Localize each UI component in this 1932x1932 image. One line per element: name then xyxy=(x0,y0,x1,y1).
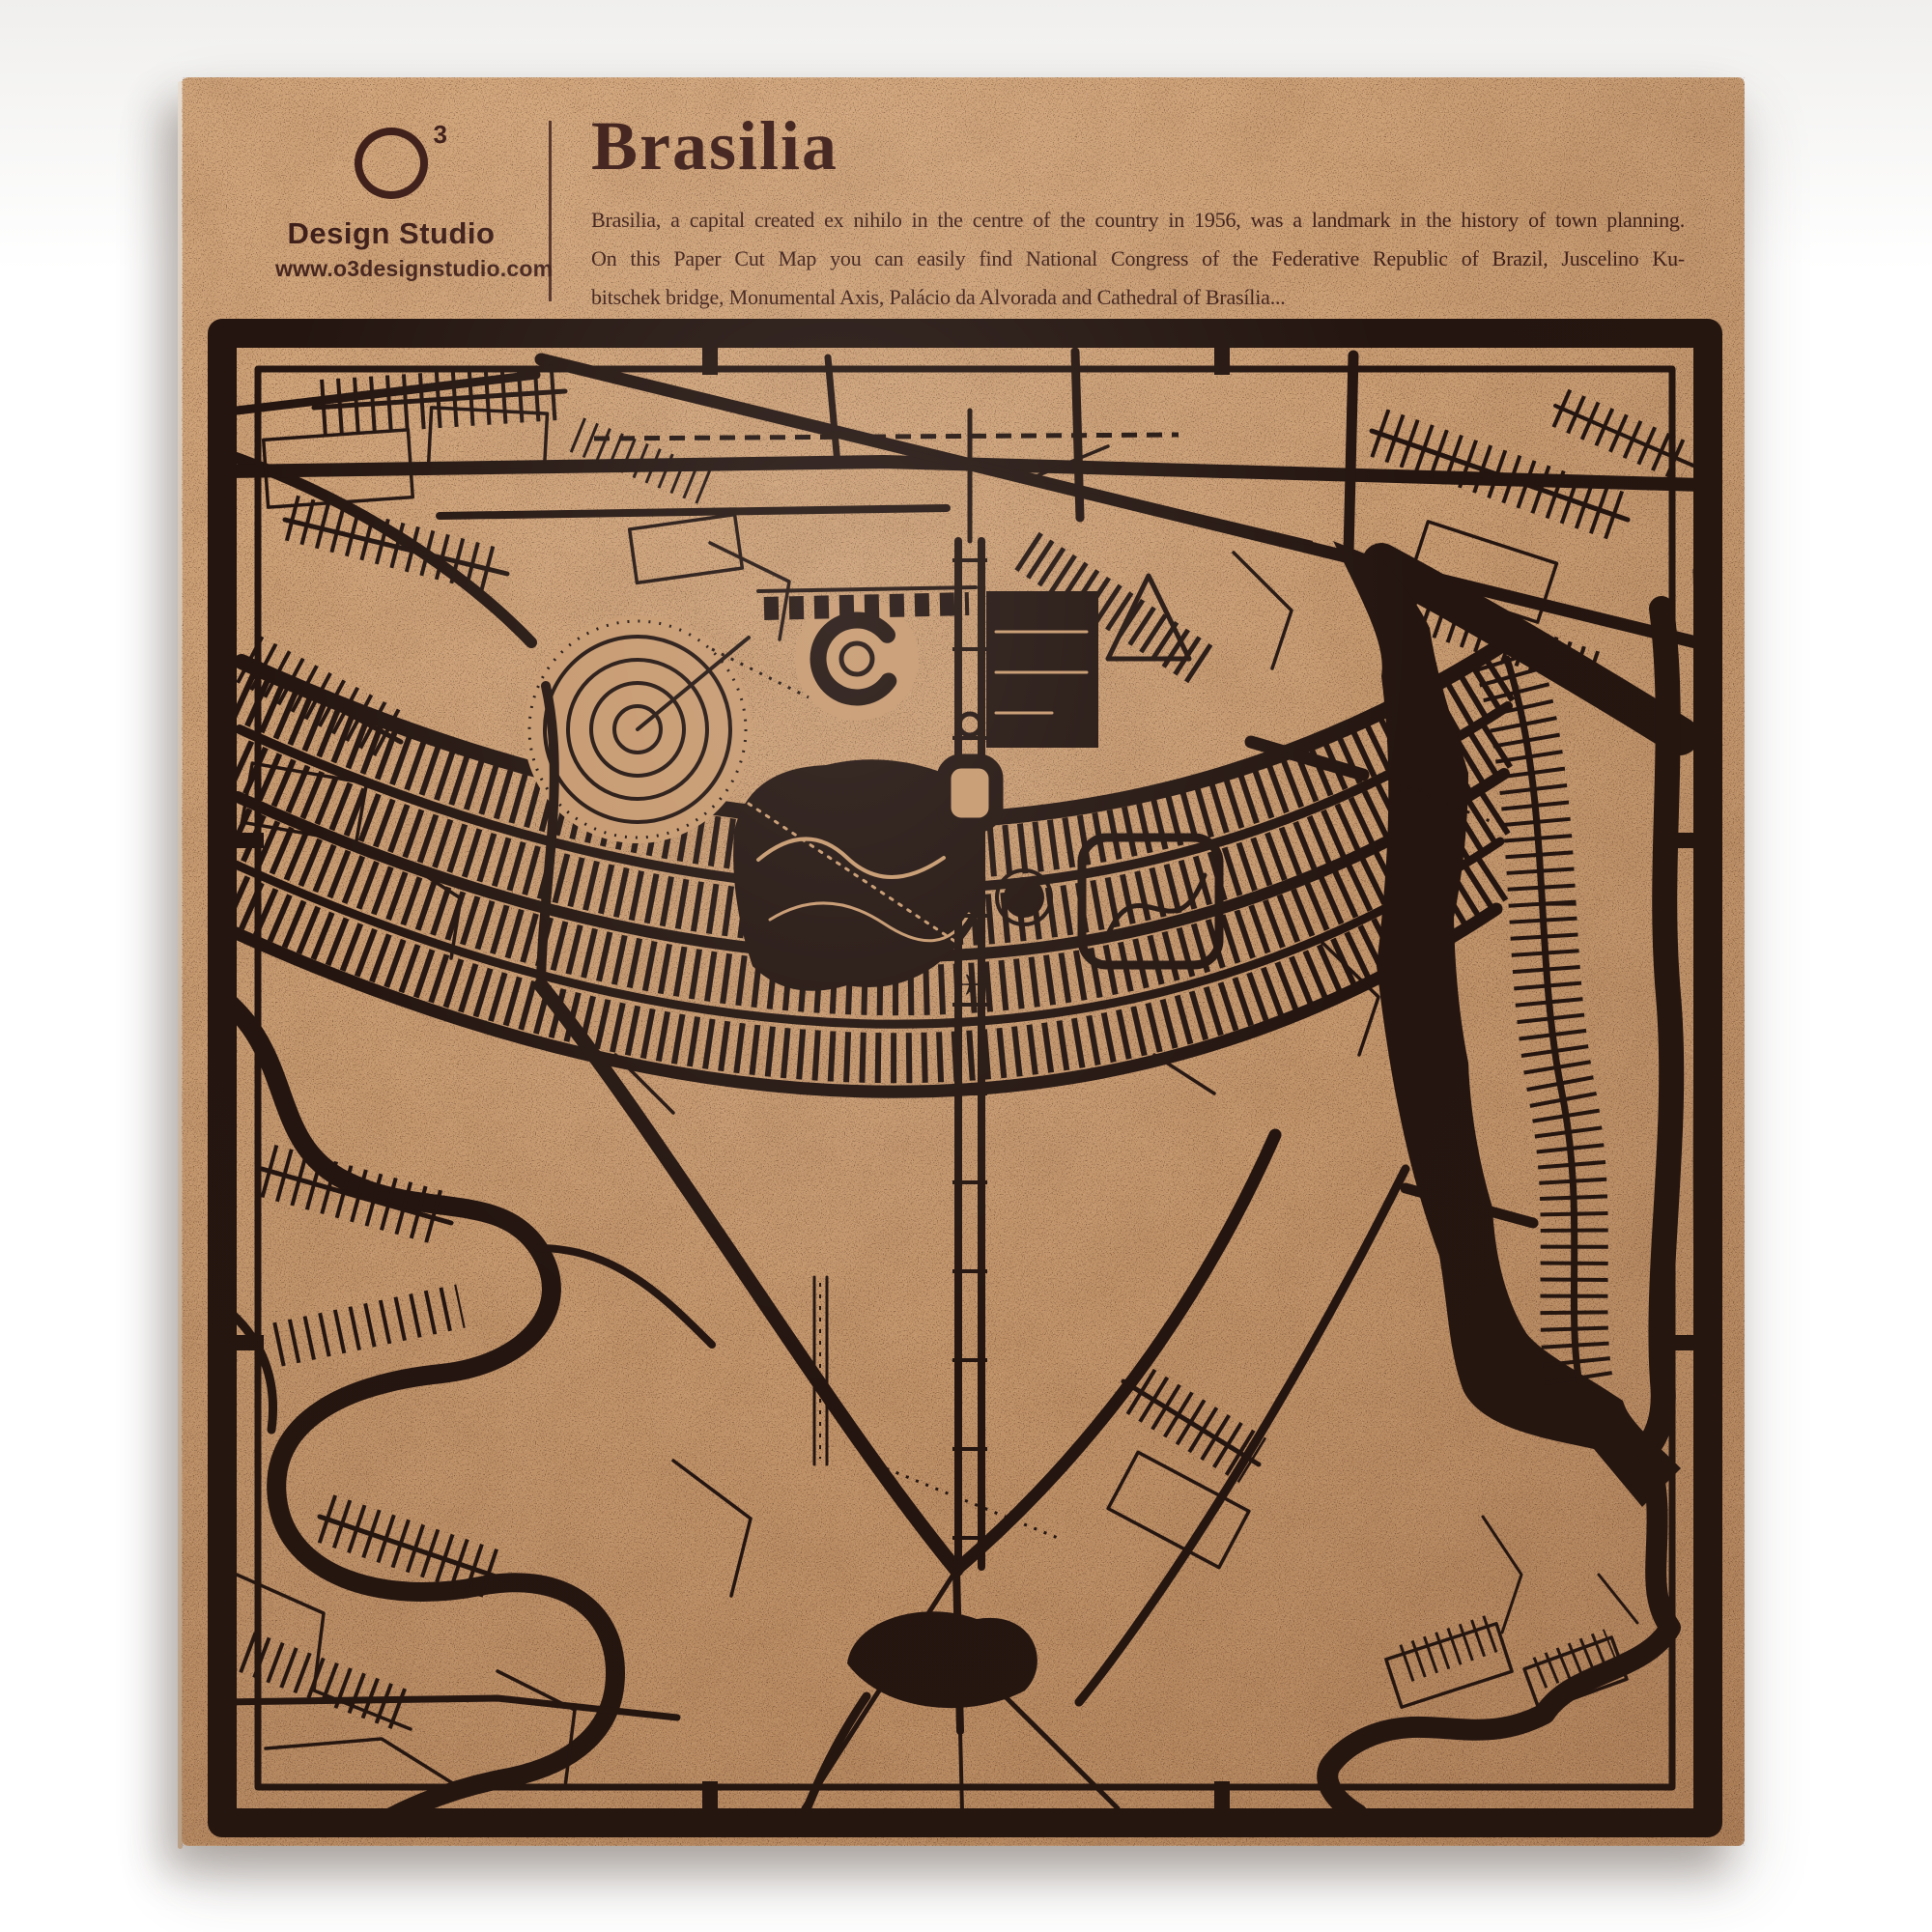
bus-station-rodoviaria xyxy=(944,761,996,825)
city-description: Brasilia, a capital created ex nihilo in… xyxy=(591,201,1685,317)
board-header: 3 Design Studio www.o3designstudio.com B… xyxy=(182,77,1745,319)
city-title: Brasilia xyxy=(591,106,838,186)
header-divider xyxy=(549,121,552,301)
logo-superscript: 3 xyxy=(434,120,447,150)
product-photo-page: { "colors":{ "page_bg":"#ffffff", "wall_… xyxy=(0,0,1932,1932)
paper-cut-map-board: 3 Design Studio www.o3designstudio.com B… xyxy=(182,77,1745,1846)
logo-o-circle xyxy=(355,128,428,199)
logo-studio-name: Design Studio xyxy=(275,216,507,251)
o3-logo-icon: 3 xyxy=(355,128,428,199)
description-line: bitschek bridge, Monumental Axis, Paláci… xyxy=(591,278,1685,317)
o3-logo: 3 Design Studio www.o3designstudio.com xyxy=(275,128,507,282)
monumental-axis: ✈ xyxy=(814,411,996,1567)
airplane-monument-glyph: ✈ xyxy=(957,969,981,1003)
brasilia-paper-cut-map: ✈ xyxy=(208,319,1722,1837)
description-line: On this Paper Cut Map you can easily fin… xyxy=(591,240,1685,278)
description-line: Brasilia, a capital created ex nihilo in… xyxy=(591,201,1685,240)
logo-website: www.o3designstudio.com xyxy=(275,256,507,282)
